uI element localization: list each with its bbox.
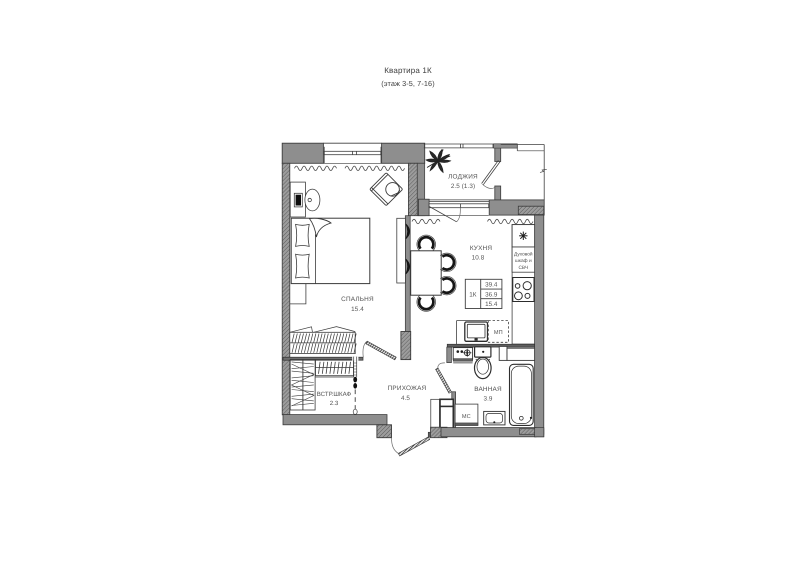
svg-text:КУХНЯ: КУХНЯ (470, 245, 493, 252)
svg-text:2.5 (1.3): 2.5 (1.3) (451, 183, 475, 190)
svg-text:ВСТР.ШКАФ: ВСТР.ШКАФ (317, 391, 352, 398)
svg-text:ПРИХОЖАЯ: ПРИХОЖАЯ (388, 385, 427, 392)
svg-text:ЛОДЖИЯ: ЛОДЖИЯ (448, 174, 478, 181)
svg-text:39.4: 39.4 (485, 282, 498, 289)
svg-text:шкаф и: шкаф и (515, 258, 532, 264)
svg-text:1К: 1К (469, 291, 477, 298)
svg-text:15.4: 15.4 (485, 301, 498, 308)
svg-text:(этаж 3-5, 7-16): (этаж 3-5, 7-16) (381, 79, 434, 88)
svg-text:36.9: 36.9 (485, 291, 498, 298)
svg-text:3.9: 3.9 (483, 396, 492, 403)
svg-text:10.8: 10.8 (472, 255, 485, 262)
svg-text:15.4: 15.4 (351, 306, 364, 313)
svg-text:2.3: 2.3 (330, 400, 339, 407)
svg-text:Духовой: Духовой (514, 251, 533, 257)
svg-text:4.5: 4.5 (401, 395, 410, 402)
svg-text:ВАННАЯ: ВАННАЯ (474, 386, 502, 393)
svg-text:СВЧ: СВЧ (518, 265, 528, 271)
svg-text:МС: МС (462, 414, 471, 420)
svg-text:СПАЛЬНЯ: СПАЛЬНЯ (341, 296, 374, 303)
svg-text:Квартира 1К: Квартира 1К (384, 66, 432, 75)
svg-text:МП: МП (494, 330, 503, 336)
